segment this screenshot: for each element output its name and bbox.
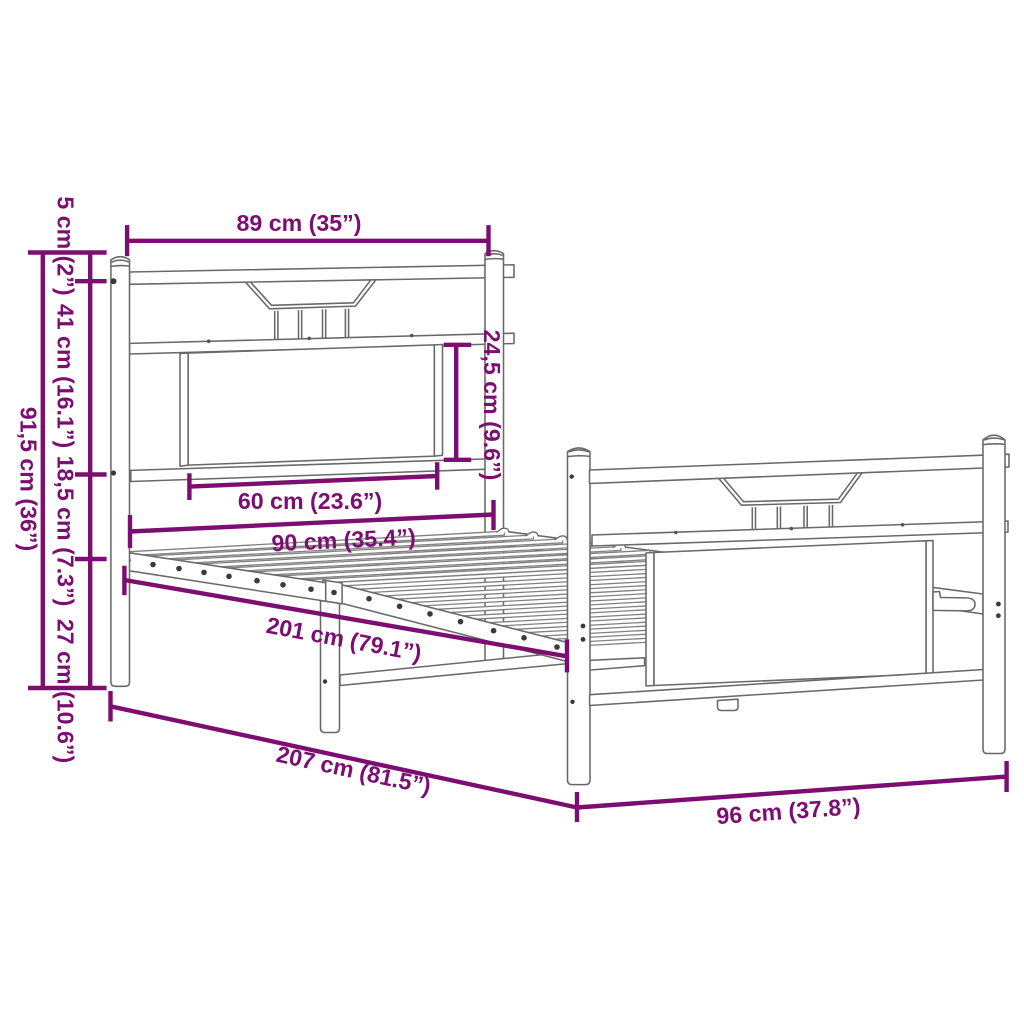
svg-text:27 cm (10.6”): 27 cm (10.6”) [53,619,79,763]
svg-text:91,5 cm (36”): 91,5 cm (36”) [15,407,41,551]
svg-text:24,5 cm (9.6”): 24,5 cm (9.6”) [479,330,505,481]
svg-text:89 cm (35”): 89 cm (35”) [236,210,361,236]
svg-text:5 cm (2”): 5 cm (2”) [53,196,79,295]
svg-text:18,5 cm (7.3”): 18,5 cm (7.3”) [53,456,79,607]
svg-text:41 cm (16.1”): 41 cm (16.1”) [53,304,79,448]
svg-text:60 cm (23.6”): 60 cm (23.6”) [238,488,382,514]
